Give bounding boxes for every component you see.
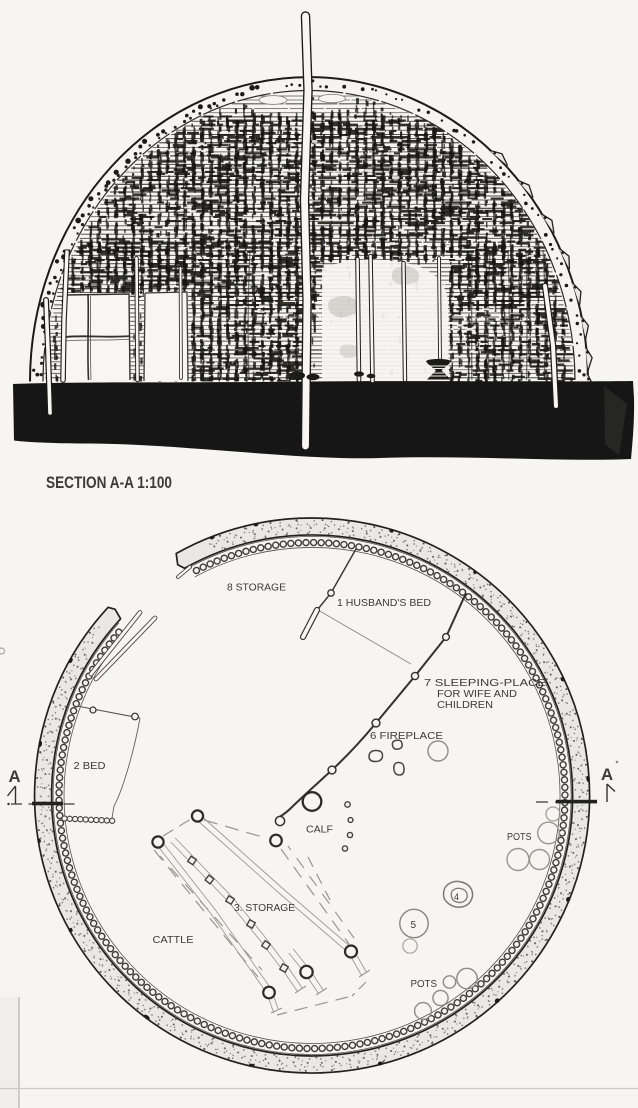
svg-text:FOR WIFE AND: FOR WIFE AND	[437, 689, 517, 700]
svg-text:7 SLEEPING-PLACE: 7 SLEEPING-PLACE	[424, 678, 546, 689]
svg-text:CHILDREN: CHILDREN	[437, 700, 493, 711]
svg-text:1 HUSBAND'S BED: 1 HUSBAND'S BED	[337, 598, 431, 609]
svg-text:2 BED: 2 BED	[74, 761, 106, 772]
svg-text:6 FIREPLACE: 6 FIREPLACE	[370, 731, 443, 742]
svg-text:8 STORAGE: 8 STORAGE	[227, 583, 286, 594]
svg-text:A: A	[9, 767, 21, 786]
svg-text:POTS: POTS	[507, 832, 532, 843]
svg-text:4: 4	[454, 892, 459, 902]
svg-text:3. STORAGE: 3. STORAGE	[234, 903, 295, 914]
svg-text:CATTLE: CATTLE	[153, 935, 194, 946]
svg-text:CALF: CALF	[306, 825, 333, 836]
svg-text:A: A	[601, 765, 613, 784]
svg-text:5: 5	[411, 920, 417, 931]
svg-text:SECTION A-A 1:100: SECTION A-A 1:100	[46, 473, 172, 492]
svg-text:POTS: POTS	[411, 979, 438, 990]
